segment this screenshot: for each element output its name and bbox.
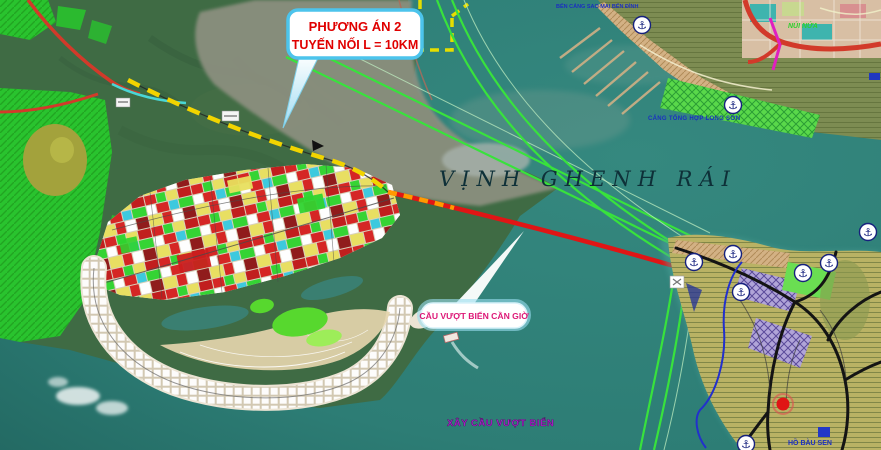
svg-text:⚓: ⚓ — [863, 226, 873, 239]
anchor-icon: ⚓ — [821, 255, 838, 272]
map-canvas: ⚓ ⚓ ⚓ ⚓ ⚓ ⚓ ⚓ ⚓ ⚓ VỊNH GHENH RÁI BẾN CẢN… — [0, 0, 881, 450]
port-general-label: CẢNG TỔNG HỢP LONG SƠN — [648, 115, 740, 122]
map-tag — [869, 73, 880, 80]
bay-label: VỊNH GHENH RÁI — [439, 167, 737, 191]
callout-option-line1: PHƯƠNG ÁN 2 — [309, 19, 402, 34]
callout-bridge-label: CẦU VƯỢT BIỂN CẦN GIỜ — [419, 310, 529, 321]
bridge-note: XÂY CẦU VƯỢT BIỂN — [447, 417, 554, 429]
mountain-label: NÚI NỨA — [788, 21, 818, 30]
anchor-icon: ⚓ — [725, 97, 742, 114]
port-top-label: BẾN CẢNG SAO MAI BẾN ĐÌNH — [556, 2, 639, 10]
anchor-icon: ⚓ — [795, 265, 812, 282]
sediment-streak — [450, 90, 630, 150]
svg-text:⚓: ⚓ — [736, 286, 746, 299]
anchor-icon: ⚓ — [725, 246, 742, 263]
svg-text:⚓: ⚓ — [728, 248, 738, 261]
red-landmark-dot — [777, 398, 790, 411]
anchor-icon: ⚓ — [686, 254, 703, 271]
callout-option-line2: TUYẾN NỐI L = 10KM — [292, 37, 419, 52]
svg-text:⚓: ⚓ — [824, 257, 834, 270]
svg-text:⚓: ⚓ — [637, 19, 647, 32]
anchor-icon: ⚓ — [738, 436, 755, 450]
svg-text:⚓: ⚓ — [798, 267, 808, 280]
svg-text:⚓: ⚓ — [689, 256, 699, 269]
planning-map: ⚓ ⚓ ⚓ ⚓ ⚓ ⚓ ⚓ ⚓ ⚓ VỊNH GHENH RÁI BẾN CẢN… — [0, 0, 881, 450]
svg-text:⚓: ⚓ — [728, 99, 738, 112]
anchor-icon: ⚓ — [860, 224, 877, 241]
anchor-icon: ⚓ — [634, 17, 651, 34]
svg-text:⚓: ⚓ — [741, 438, 751, 450]
anchor-icon: ⚓ — [733, 284, 750, 301]
blue-square-marker — [818, 427, 830, 437]
